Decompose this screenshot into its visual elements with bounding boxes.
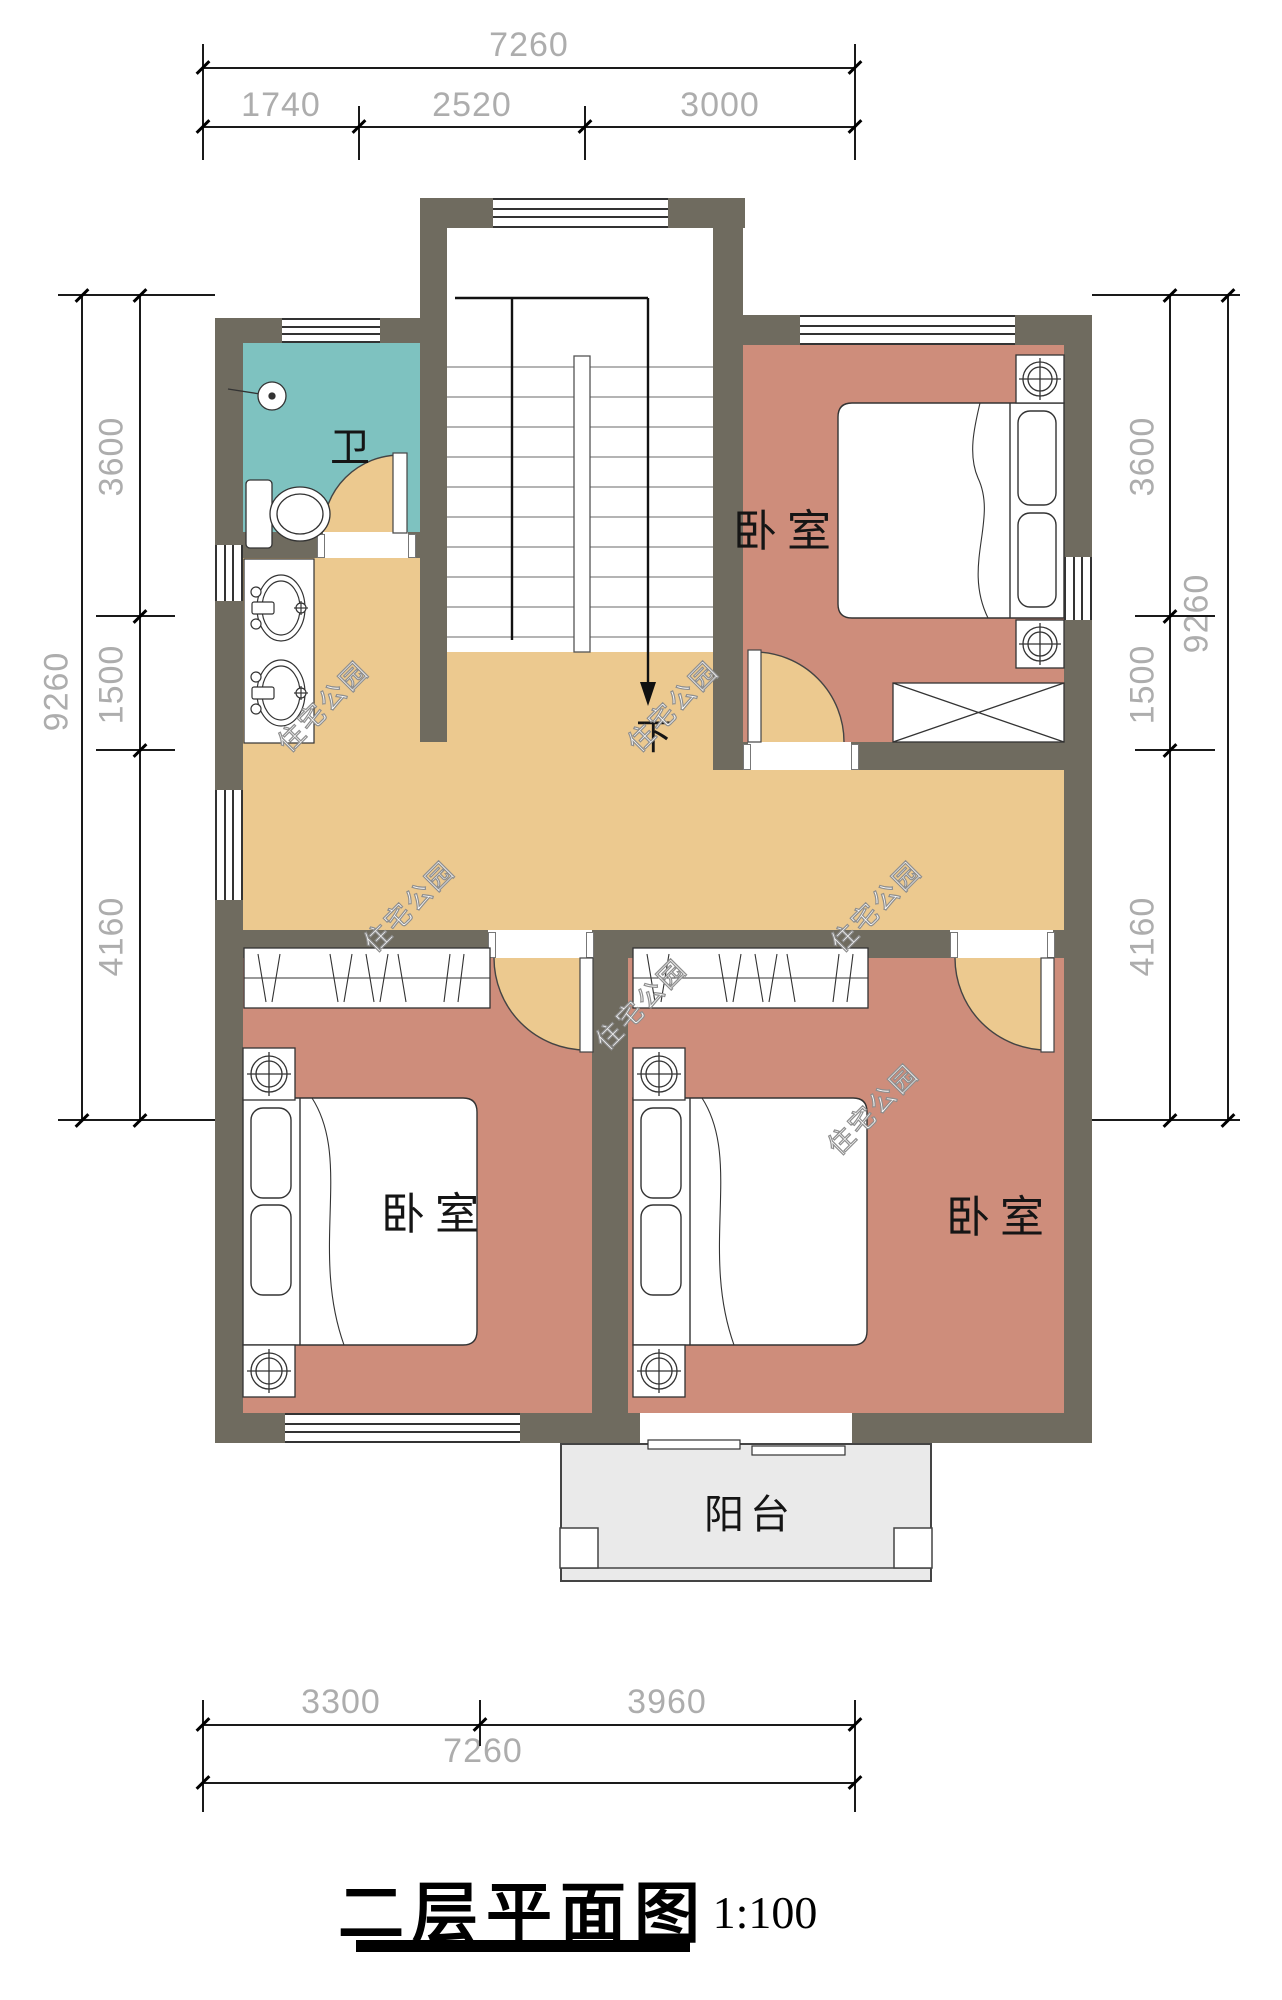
floor-plan: 卫 卧室 卧室 卧室 阳台 下 住宅公园 住宅公园 住宅公园 住宅公园 住宅公园…: [0, 0, 1282, 2000]
bedroom-bottom-right-label: 卧室: [915, 1181, 1085, 1245]
dim-right-total: 9260: [1178, 544, 1217, 684]
toilet-icon: [246, 480, 330, 548]
dim-bottom-total: 7260: [423, 1732, 543, 1771]
witness-line: [202, 44, 204, 160]
dimension-line: [203, 1782, 855, 1784]
dimension-line: [203, 126, 855, 128]
balcony-label: 阳台: [665, 1482, 835, 1540]
title-underline: [356, 1940, 690, 1952]
bathroom-label: 卫: [310, 415, 390, 473]
sliding-door-icon: [648, 1440, 845, 1455]
witness-line: [854, 1700, 856, 1812]
bedroom-br-door-icon: [955, 958, 1054, 1052]
stair-direction-arrow-icon: [455, 298, 656, 706]
wardrobe-icon: [893, 683, 1064, 742]
witness-line: [202, 1700, 204, 1812]
bedroom-tr-door-icon: [748, 650, 844, 742]
dim-left-seg1: 3600: [93, 387, 132, 527]
dim-top-seg2: 2520: [402, 86, 542, 125]
bedroom-bottom-left-label: 卧室: [350, 1178, 520, 1242]
dim-top-total: 7260: [459, 26, 599, 65]
dim-bottom-seg1: 3300: [271, 1683, 411, 1722]
title-scale: 1:100: [700, 1886, 830, 1939]
stair-rail-icon: [574, 356, 590, 652]
dimension-line: [203, 1724, 855, 1726]
dim-bottom-seg2: 3960: [597, 1683, 737, 1722]
bedroom-top-right-label: 卧室: [702, 495, 872, 559]
dim-top-seg1: 1740: [211, 86, 351, 125]
dimension-line: [139, 295, 141, 1120]
dim-left-total: 9260: [38, 622, 77, 762]
dim-top-seg3: 3000: [650, 86, 790, 125]
witness-line: [1135, 615, 1215, 617]
witness-line: [96, 615, 175, 617]
witness-line: [584, 106, 586, 160]
witness-line: [1135, 749, 1215, 751]
witness-line: [854, 44, 856, 160]
dim-right-seg1: 3600: [1124, 387, 1163, 527]
witness-line: [358, 106, 360, 160]
dimension-line: [1169, 295, 1171, 1120]
dim-left-seg2: 1500: [93, 615, 132, 755]
dim-left-seg3: 4160: [93, 867, 132, 1007]
dim-right-seg2: 1500: [1124, 615, 1163, 755]
dim-right-seg3: 4160: [1124, 867, 1163, 1007]
dimension-line: [81, 295, 83, 1120]
shower-head-icon: [228, 382, 286, 410]
dimension-line: [203, 67, 855, 69]
dimension-line: [1227, 295, 1229, 1120]
witness-line: [96, 749, 175, 751]
